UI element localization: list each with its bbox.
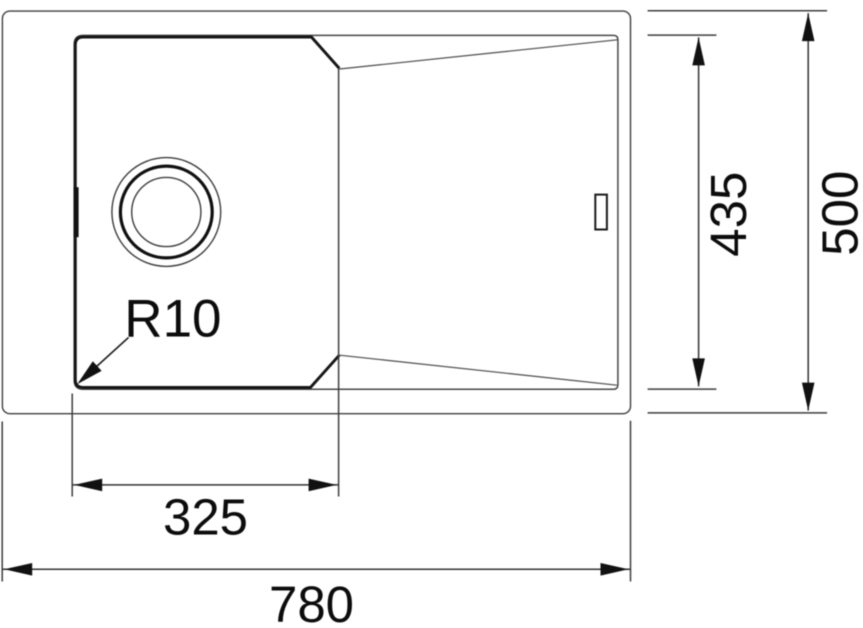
svg-text:435: 435 [700,172,757,257]
svg-text:780: 780 [269,576,354,628]
svg-text:325: 325 [163,488,248,545]
svg-text:500: 500 [812,171,863,256]
svg-text:R10: R10 [124,289,221,348]
